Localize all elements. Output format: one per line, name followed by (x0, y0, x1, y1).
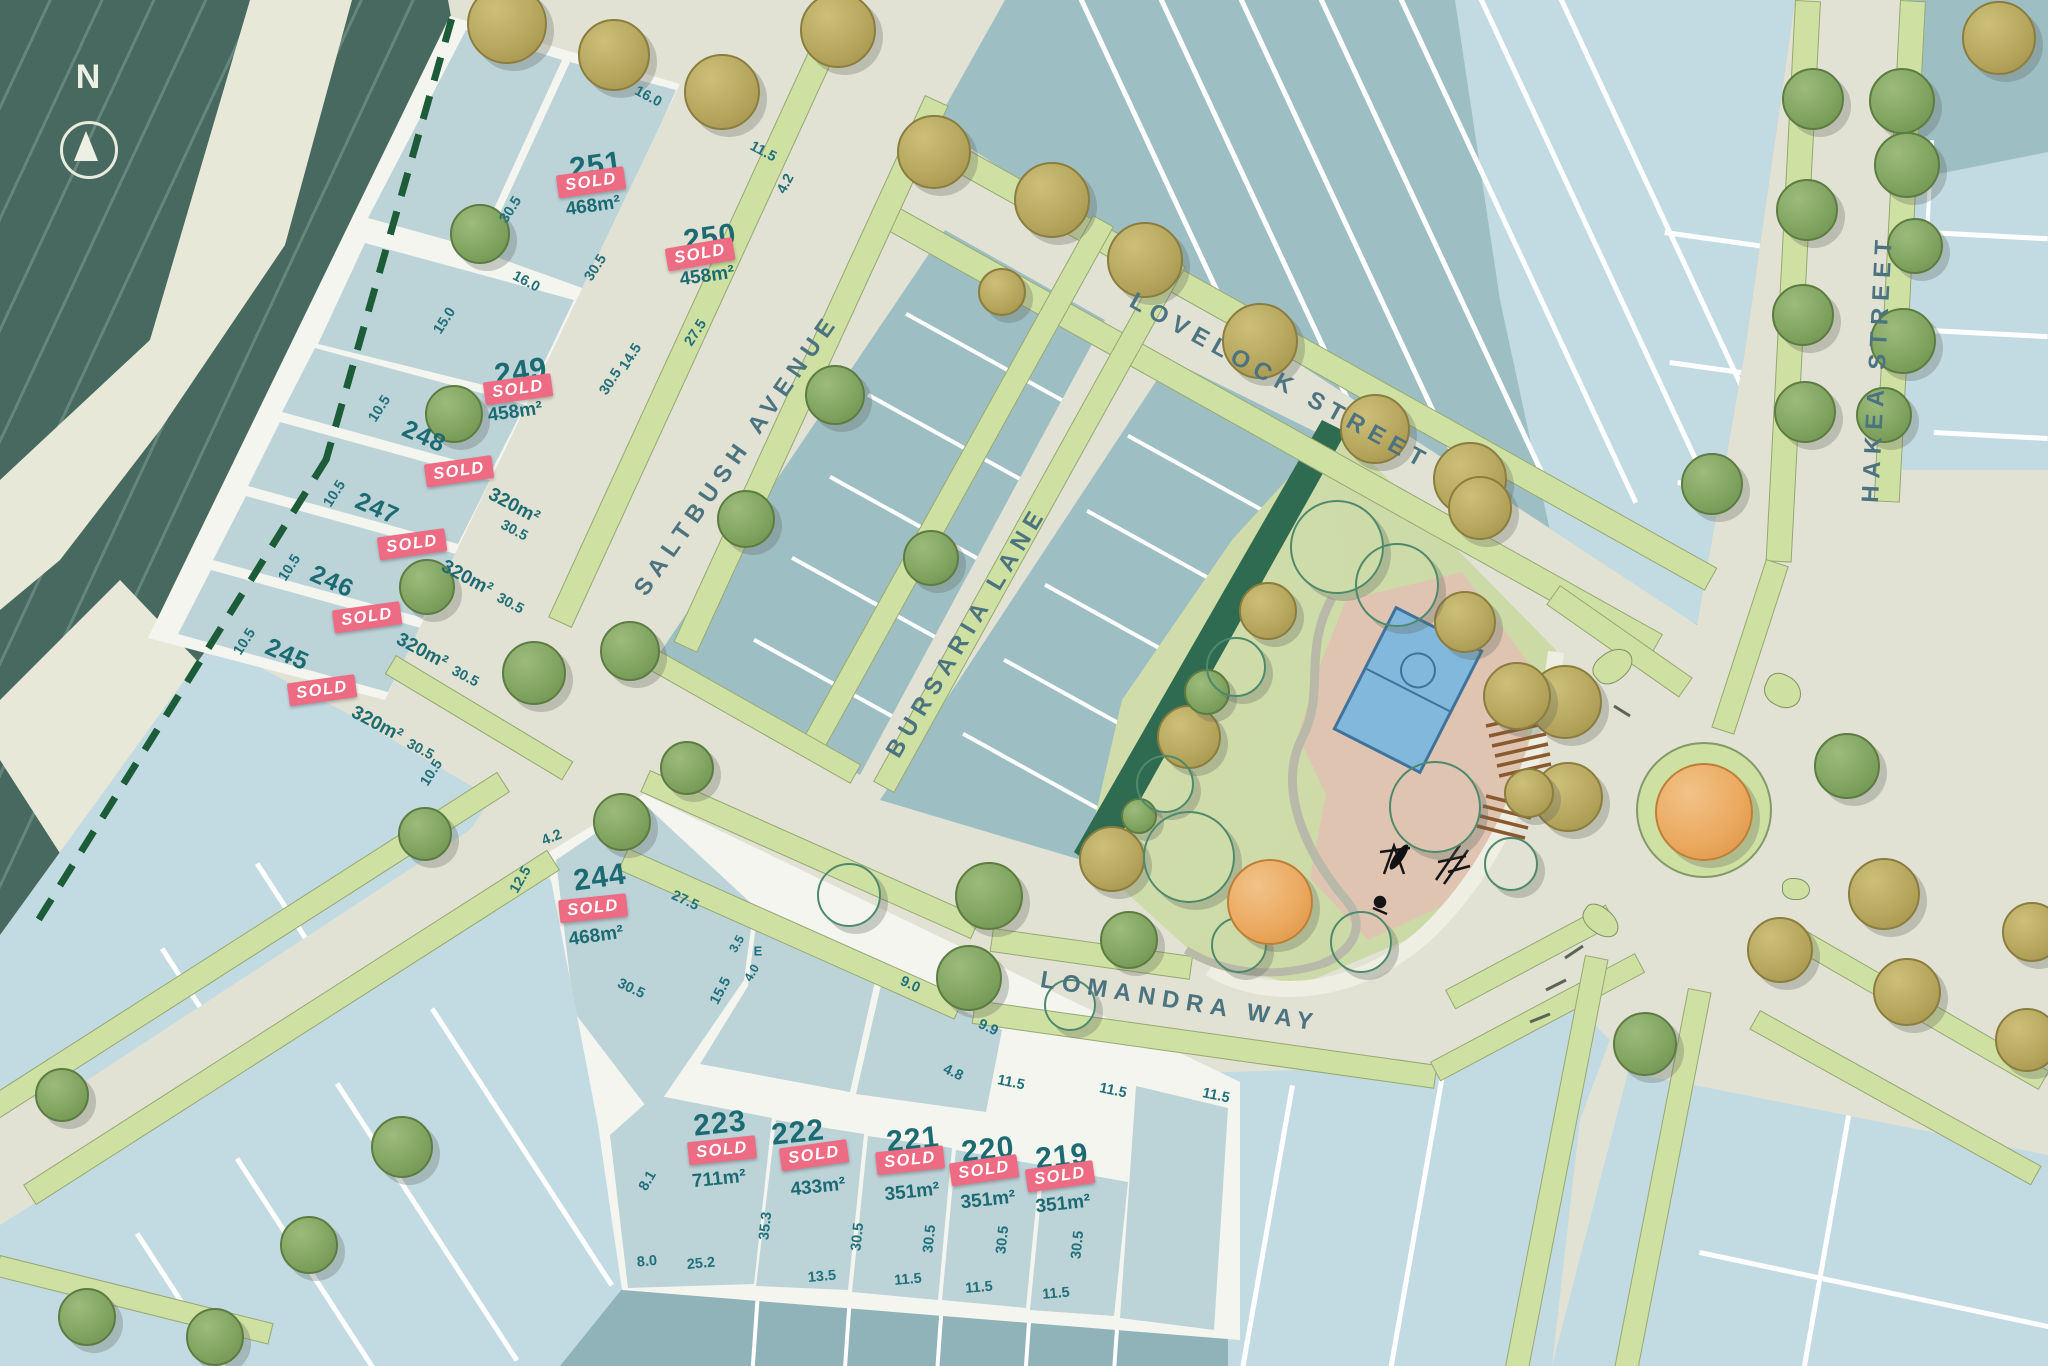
tree-green (280, 1216, 338, 1274)
tree-olive (1848, 858, 1920, 930)
tree-green (805, 365, 865, 425)
compass-needle-icon (74, 131, 98, 161)
tree-olive (1483, 662, 1551, 730)
tree-green (717, 490, 775, 548)
tree-olive (1747, 917, 1813, 983)
tree-green (1874, 132, 1940, 198)
dim-label: 11.5 (894, 1272, 923, 1289)
tree-green (398, 807, 452, 861)
easement-label: E (754, 945, 763, 958)
tree-teal (1355, 543, 1439, 627)
tree-teal (1330, 911, 1392, 973)
tree-olive (1962, 1, 2036, 75)
dim-label: 25.2 (686, 1256, 715, 1273)
tree-teal (1136, 755, 1194, 813)
tree-green (186, 1308, 244, 1366)
tree-teal (1206, 637, 1266, 697)
dim-label: 11.5 (965, 1280, 994, 1297)
tree-green (955, 862, 1023, 930)
tree-green (1869, 68, 1935, 134)
dim-label: 30.5 (921, 1224, 938, 1254)
tree-olive (1079, 826, 1145, 892)
tree-green (371, 1116, 433, 1178)
tree-green (600, 621, 660, 681)
tree-green (1100, 911, 1158, 969)
tree-green (936, 945, 1002, 1011)
tree-olive (1107, 222, 1183, 298)
tree-olive (1504, 768, 1554, 818)
traffic-island (1782, 878, 1810, 900)
tree-green (1782, 68, 1844, 130)
tree-olive (578, 19, 650, 91)
tree-olive (1014, 162, 1090, 238)
tree-teal (1143, 811, 1235, 903)
tree-green (1774, 381, 1836, 443)
tree-green (58, 1288, 116, 1346)
tree-green (903, 530, 959, 586)
tree-olive (1448, 476, 1512, 540)
dim-label: 11.5 (1042, 1286, 1071, 1303)
dim-label: 30.5 (849, 1222, 866, 1252)
lot-number: 244 (572, 859, 629, 896)
tree-green (1772, 284, 1834, 346)
tree-green (502, 641, 566, 705)
dim-label: 13.5 (807, 1269, 836, 1286)
tree-olive (684, 54, 760, 130)
tree-green (1814, 733, 1880, 799)
tree-green (1613, 1012, 1677, 1076)
tree-teal (1389, 761, 1481, 853)
dim-label: 30.5 (994, 1225, 1011, 1255)
map-stage: LOVELOCK STREET SALTBUSH AVENUE BURSARIA… (0, 0, 2048, 1366)
tree-teal (817, 863, 881, 927)
tree-olive (897, 115, 971, 189)
tree-olive (1434, 591, 1496, 653)
tree-olive (1873, 958, 1941, 1026)
tree-green (1776, 179, 1838, 241)
compass-n-label: N (76, 60, 101, 94)
dim-label: 8.0 (636, 1254, 657, 1270)
tree-green (35, 1068, 89, 1122)
tree-orange (1227, 859, 1313, 945)
compass: N (50, 55, 140, 205)
dim-label: 30.5 (1069, 1230, 1086, 1260)
tree-orange (1655, 763, 1753, 861)
dim-label: 35.3 (757, 1211, 774, 1241)
tree-green (1681, 453, 1743, 515)
tree-olive (978, 268, 1026, 316)
tree-green (593, 793, 651, 851)
tree-olive (1239, 582, 1297, 640)
tree-green (660, 741, 714, 795)
tree-teal (1484, 837, 1538, 891)
